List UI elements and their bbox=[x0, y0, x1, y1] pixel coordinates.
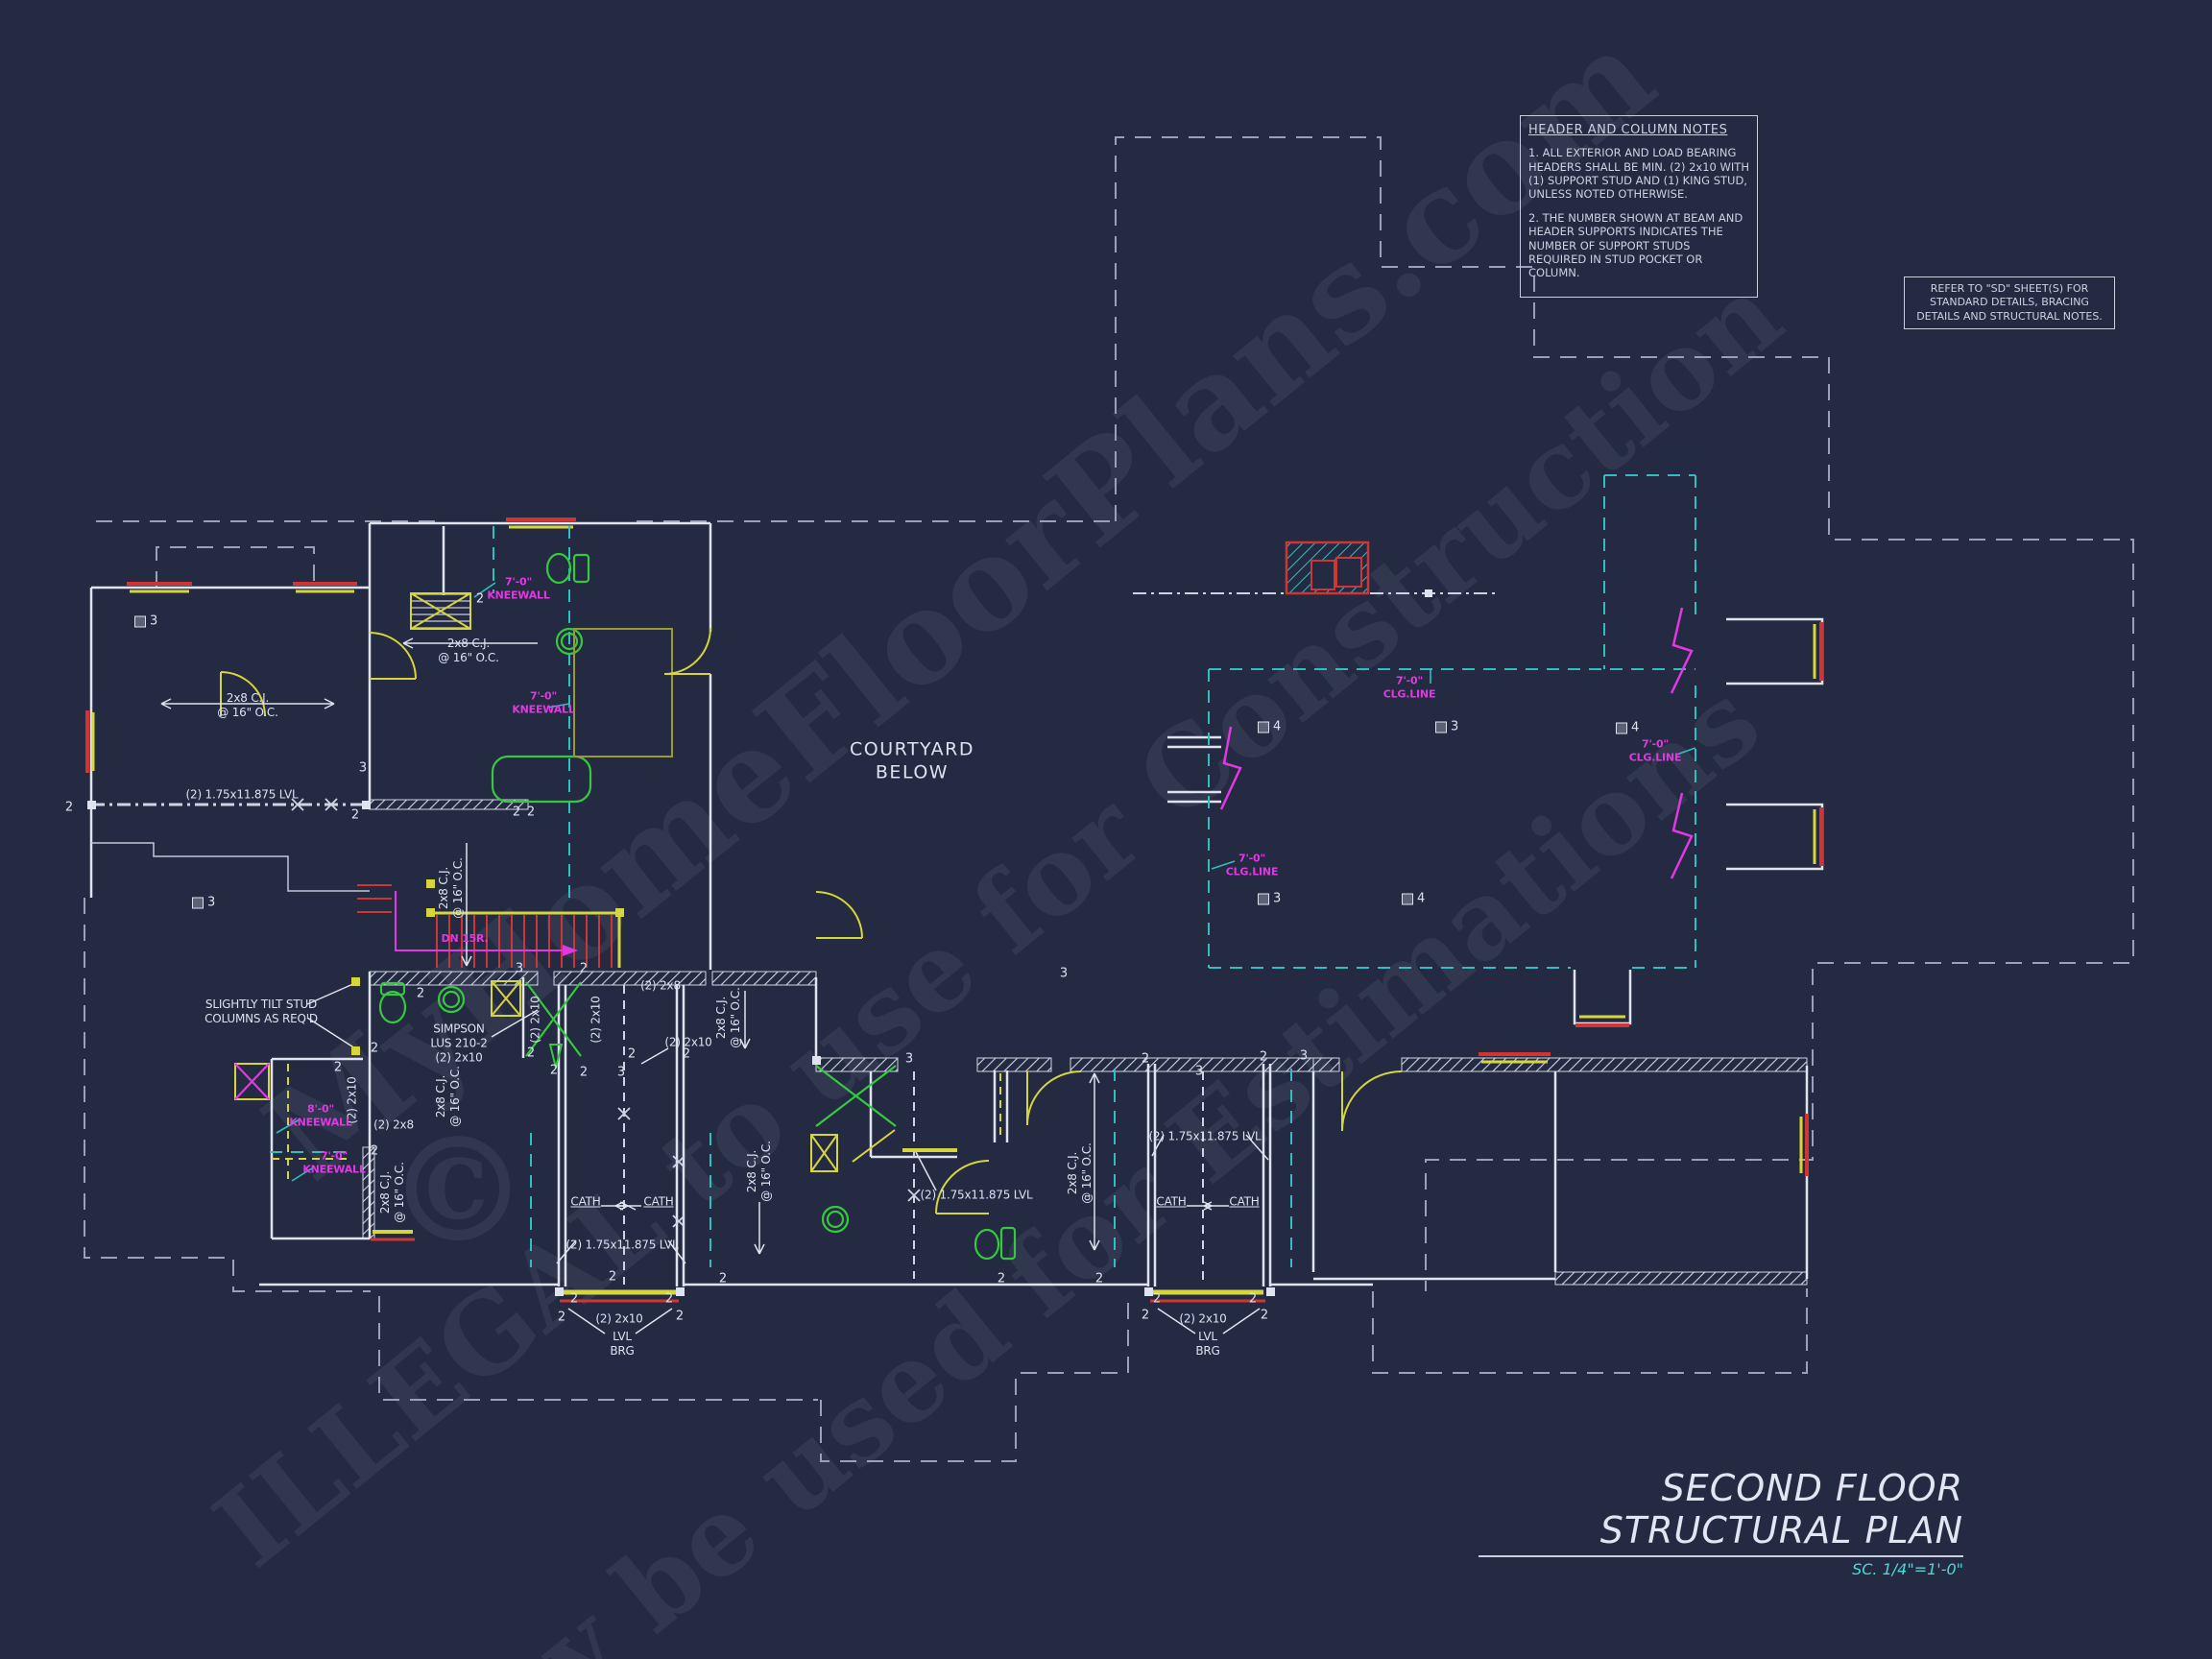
toilet-icon bbox=[975, 1230, 998, 1259]
toilet-tank-icon bbox=[574, 555, 589, 582]
sd-reference-box: REFER TO "SD" SHEET(S) FOR STANDARD DETA… bbox=[1904, 276, 2115, 329]
break-symbols bbox=[1221, 608, 1692, 878]
staircase bbox=[357, 885, 619, 968]
roof-step-lines bbox=[91, 843, 370, 891]
toilet-icon bbox=[380, 992, 405, 1022]
toilet-tank-icon bbox=[1001, 1228, 1015, 1259]
title-block: SECOND FLOOR STRUCTURAL PLAN SC. 1/4"=1'… bbox=[1479, 1467, 1963, 1578]
sd-reference-text: REFER TO "SD" SHEET(S) FOR STANDARD DETA… bbox=[1916, 282, 2103, 323]
door-swings bbox=[221, 628, 1402, 1214]
floor-plan-drawing bbox=[0, 0, 2212, 1659]
note-2: 2. THE NUMBER SHOWN AT BEAM AND HEADER S… bbox=[1528, 211, 1749, 280]
bathtub-icon bbox=[493, 757, 590, 802]
chimney-fireplace bbox=[1286, 542, 1368, 593]
support-squares bbox=[87, 589, 1432, 1296]
toilet-icon bbox=[547, 554, 570, 583]
sheet-scale: SC. 1/4"=1'-0" bbox=[1479, 1560, 1963, 1578]
ceiling-line-leaders bbox=[276, 583, 1695, 1181]
vanity-counter bbox=[574, 629, 672, 757]
window-headers bbox=[87, 519, 1821, 1301]
dimension-arrows bbox=[161, 638, 1268, 1334]
header-column-notes-box: HEADER AND COLUMN NOTES 1. ALL EXTERIOR … bbox=[1520, 115, 1758, 298]
beam-lines bbox=[91, 593, 1498, 1285]
hatched-walls bbox=[363, 800, 1807, 1285]
note-1: 1. ALL EXTERIOR AND LOAD BEARING HEADERS… bbox=[1528, 146, 1749, 202]
sheet-title: SECOND FLOOR STRUCTURAL PLAN bbox=[1479, 1467, 1963, 1557]
cad-drawing-sheet: MyHomeFloorPlans.comILLEGAL to use for C… bbox=[0, 0, 2212, 1659]
notes-title: HEADER AND COLUMN NOTES bbox=[1528, 123, 1749, 138]
